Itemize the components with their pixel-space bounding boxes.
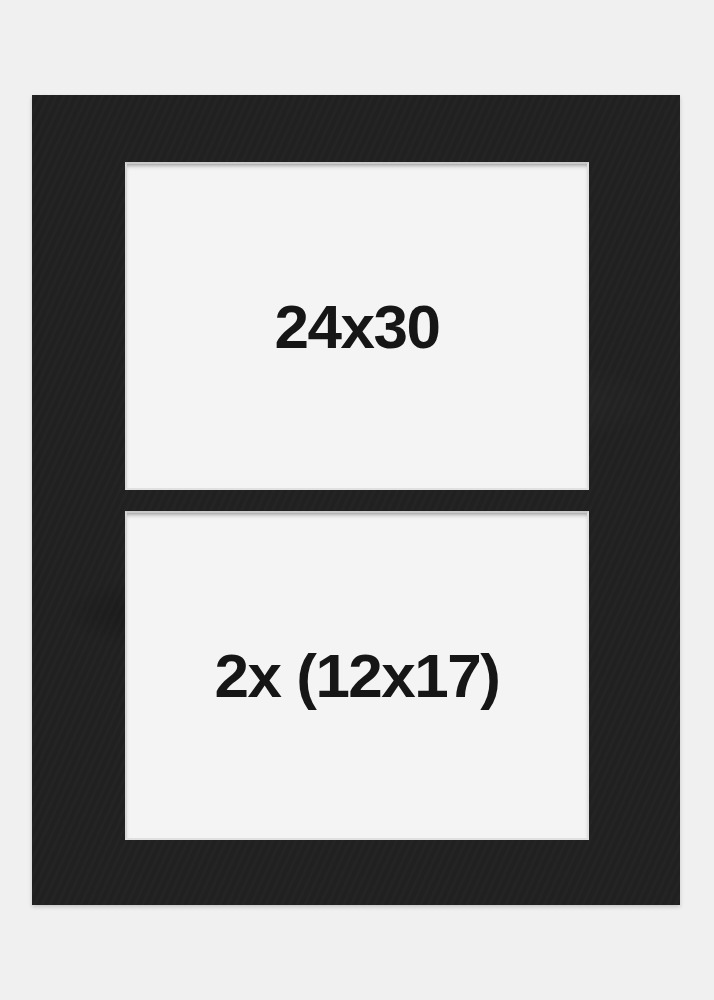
opening-size-label-top: 24x30 xyxy=(275,291,440,362)
mat-board: 24x30 2x (12x17) xyxy=(32,95,680,905)
mat-opening-bottom: 2x (12x17) xyxy=(125,511,589,840)
opening-size-label-bottom: 2x (12x17) xyxy=(215,640,500,711)
mat-opening-top: 24x30 xyxy=(125,162,589,490)
product-image: 24x30 2x (12x17) xyxy=(0,0,714,1000)
